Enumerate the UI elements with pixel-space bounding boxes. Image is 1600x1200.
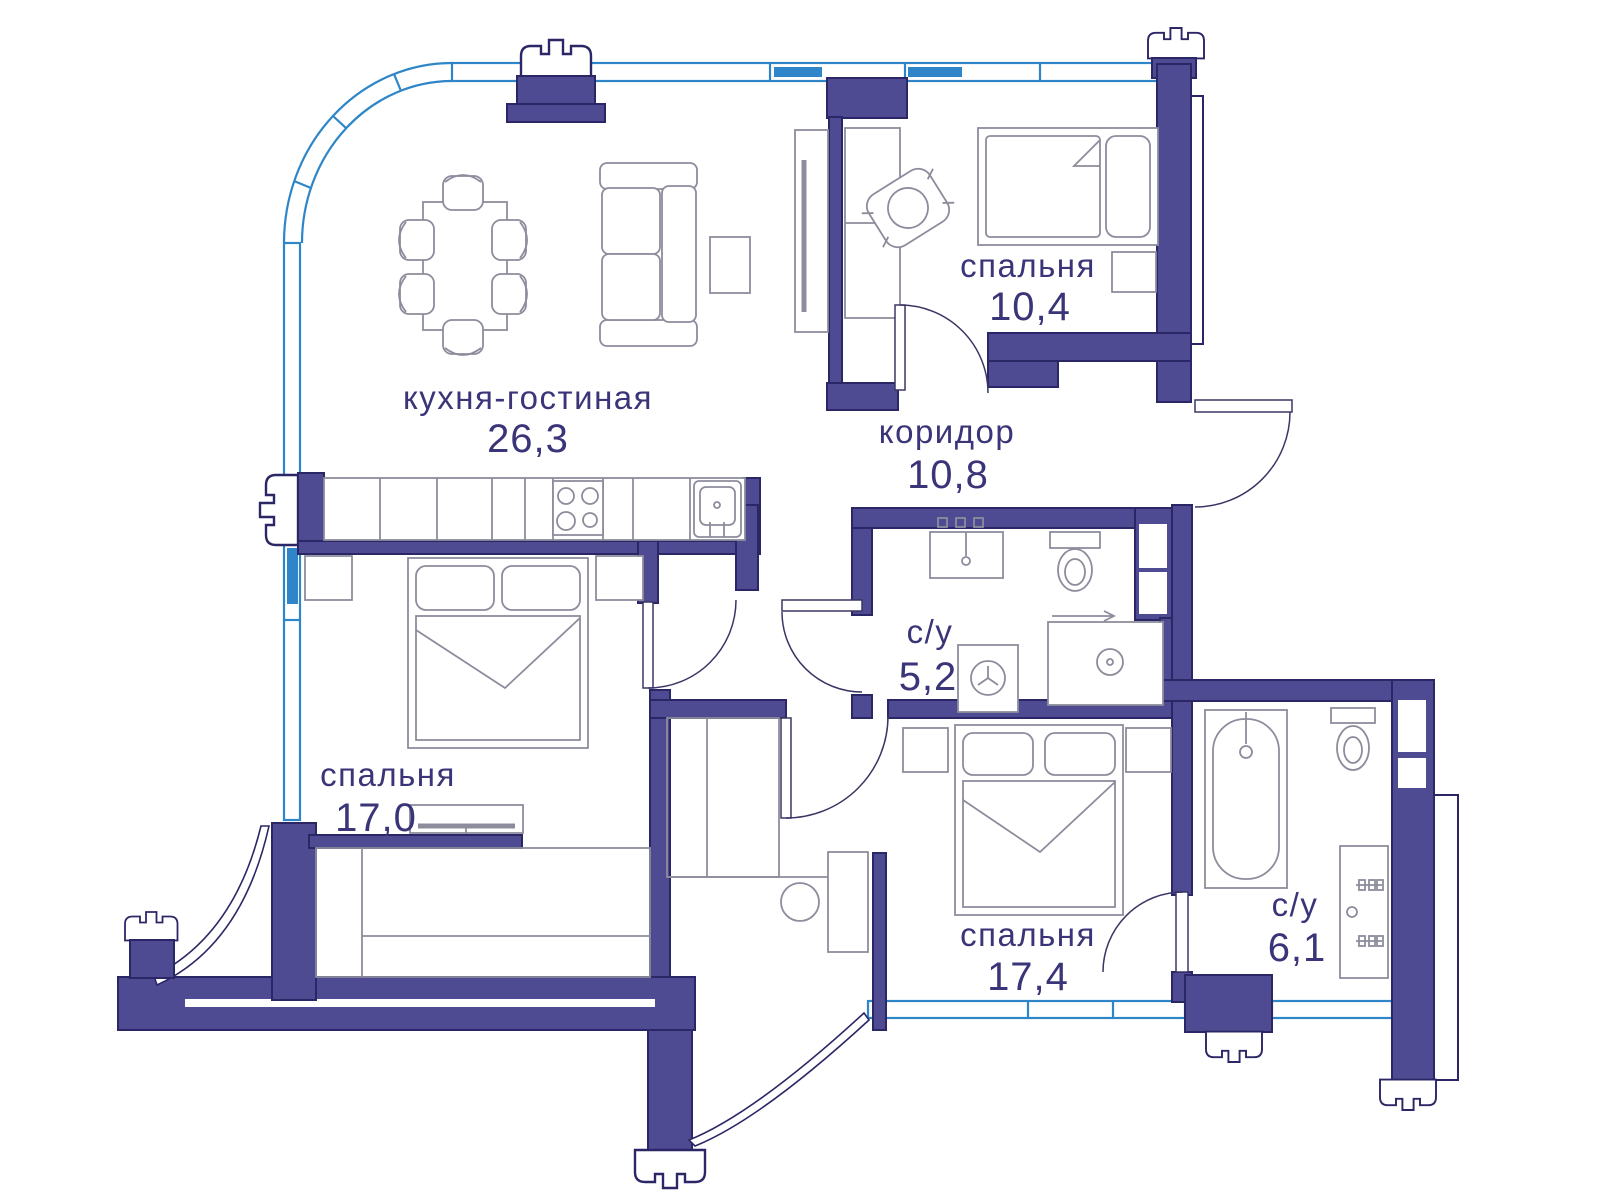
pier-balcony-left bbox=[272, 823, 316, 1000]
pier-cap-ornament bbox=[1148, 28, 1204, 58]
pier-bottom-middle bbox=[648, 1030, 692, 1150]
kitchen-sink-icon bbox=[694, 481, 741, 537]
chair bbox=[492, 274, 527, 314]
label-bedroom-right: спальня bbox=[960, 916, 1096, 953]
door-bedroom-left bbox=[643, 600, 736, 688]
bathtub-icon bbox=[1205, 710, 1287, 888]
window-opening-symbol bbox=[908, 67, 962, 77]
window-band-bottom-bedroom bbox=[868, 1001, 1185, 1018]
double-bed bbox=[955, 725, 1123, 915]
door-bedroom-small bbox=[895, 305, 988, 393]
closet-room-furniture bbox=[667, 718, 868, 952]
chair bbox=[443, 175, 483, 210]
shower-icon bbox=[1048, 611, 1163, 705]
area-bath-small: 5,2 bbox=[899, 655, 958, 699]
area-bedroom-left: 17,0 bbox=[335, 796, 417, 840]
double-bed bbox=[408, 558, 588, 748]
nightstand bbox=[1126, 728, 1171, 772]
label-bedroom-small: спальня bbox=[960, 247, 1096, 284]
dining-set bbox=[399, 175, 527, 355]
wall-kitchen-counter bbox=[298, 541, 760, 554]
pier-cap-ornament bbox=[1206, 1032, 1262, 1062]
kitchen-counter bbox=[324, 478, 745, 540]
bedroom-right-furniture bbox=[903, 725, 1171, 915]
wall-living-bedroom bbox=[829, 117, 842, 393]
wall-pier bbox=[827, 78, 907, 118]
wardrobe bbox=[667, 718, 779, 877]
label-bedroom-left: спальня bbox=[320, 756, 456, 793]
washing-machine-icon bbox=[958, 645, 1018, 712]
sofa bbox=[600, 163, 697, 346]
toilet-icon bbox=[1050, 532, 1100, 591]
label-bath-small: с/у bbox=[907, 613, 954, 650]
label-kitchen-living: кухня-гостиная bbox=[403, 379, 653, 416]
area-corridor: 10,8 bbox=[907, 453, 989, 497]
wall-right-entry bbox=[1172, 505, 1192, 682]
desk bbox=[828, 852, 868, 952]
door-bath-small bbox=[782, 600, 862, 692]
wall-bath52-top bbox=[852, 508, 1135, 528]
pier-cap-ornament bbox=[635, 1150, 705, 1188]
tv-unit-living bbox=[795, 130, 828, 332]
chair bbox=[443, 320, 483, 355]
area-bedroom-right: 17,4 bbox=[987, 955, 1069, 999]
label-corridor: коридор bbox=[879, 413, 1015, 450]
pier-bottom-right bbox=[1185, 975, 1272, 1032]
toilet-icon bbox=[1331, 708, 1375, 770]
wall-closet-divider bbox=[873, 853, 886, 1030]
chair bbox=[399, 274, 434, 314]
pier-cap-ornament bbox=[1380, 1080, 1436, 1110]
floor-plan-svg: кухня-гостиная 26,3 спальня 10,4 коридор… bbox=[0, 0, 1600, 1200]
bath-small-fixtures bbox=[930, 518, 1163, 712]
chair bbox=[781, 883, 819, 921]
pier-cap-ornament bbox=[521, 40, 591, 78]
balcony-door-symbol bbox=[287, 548, 298, 604]
area-bedroom-small: 10,4 bbox=[989, 285, 1071, 329]
pier-cap-ornament bbox=[260, 475, 298, 545]
nightstand bbox=[903, 728, 948, 772]
floorplan-page: кухня-гостиная 26,3 спальня 10,4 коридор… bbox=[0, 0, 1600, 1200]
nightstand bbox=[596, 556, 643, 600]
pier-cap-ornament bbox=[125, 912, 178, 941]
area-kitchen-living: 26,3 bbox=[487, 417, 569, 461]
built-in-wardrobe bbox=[316, 848, 650, 977]
nightstand bbox=[1112, 252, 1156, 292]
single-bed bbox=[978, 128, 1158, 245]
nightstand bbox=[305, 556, 352, 600]
tv-console bbox=[410, 805, 523, 834]
window-opening-symbol bbox=[774, 67, 822, 77]
label-bath-large: с/у bbox=[1272, 886, 1319, 923]
area-bath-large: 6,1 bbox=[1268, 926, 1327, 970]
chair bbox=[492, 220, 527, 260]
balcony-curve-bottom bbox=[689, 1013, 869, 1146]
window-band-bottom-bath bbox=[1272, 1001, 1392, 1018]
side-table bbox=[710, 237, 750, 293]
door-entry bbox=[1195, 400, 1292, 507]
chair bbox=[399, 220, 434, 260]
vanity-double-sink bbox=[1340, 846, 1388, 978]
hob-icon bbox=[553, 481, 603, 535]
door-bedroom-right bbox=[781, 716, 888, 818]
